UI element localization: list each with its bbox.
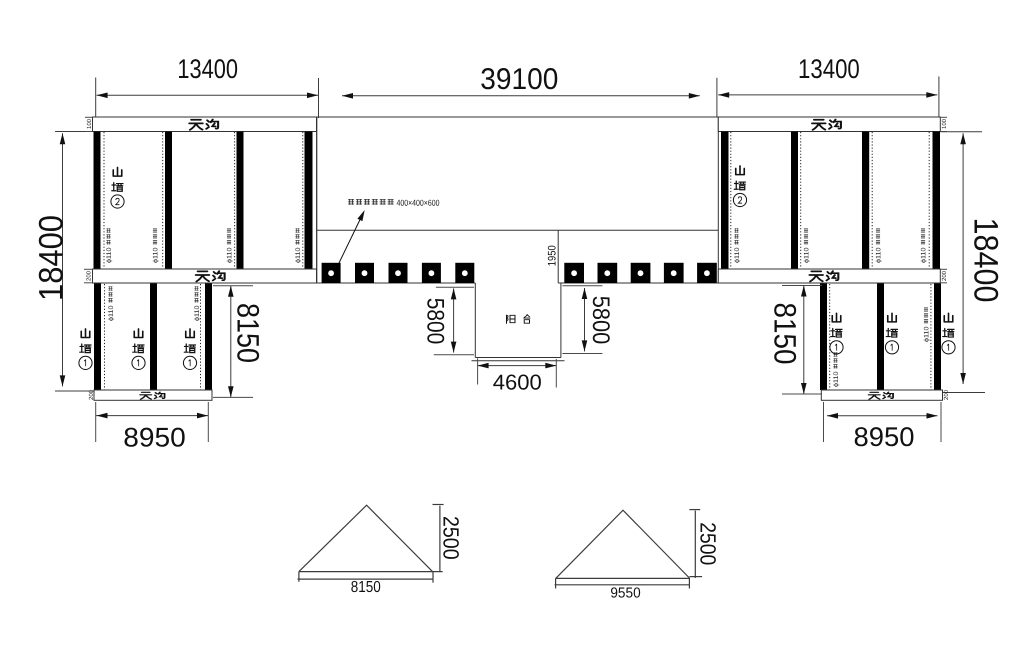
svg-text:5800: 5800 — [422, 298, 449, 345]
svg-text:8950: 8950 — [123, 422, 186, 452]
svg-text:ϕ110: ϕ110 — [734, 247, 741, 263]
svg-text:ϕ110: ϕ110 — [833, 371, 840, 387]
svg-text:200: 200 — [88, 389, 95, 400]
svg-text:ϕ110: ϕ110 — [923, 326, 930, 342]
svg-text:200: 200 — [941, 270, 948, 281]
svg-text:ϕ110: ϕ110 — [108, 305, 115, 321]
svg-text:ϕ110: ϕ110 — [226, 247, 233, 263]
svg-text:ϕ110: ϕ110 — [194, 305, 201, 321]
svg-text:2500: 2500 — [439, 516, 464, 560]
svg-text:13400: 13400 — [177, 54, 238, 84]
svg-text:9550: 9550 — [610, 585, 640, 601]
svg-text:39100: 39100 — [480, 63, 558, 96]
svg-text:1950: 1950 — [546, 245, 558, 266]
svg-text:ϕ110: ϕ110 — [152, 247, 159, 263]
svg-text:2500: 2500 — [696, 522, 721, 565]
svg-text:ϕ110: ϕ110 — [295, 247, 302, 263]
svg-text:ϕ110: ϕ110 — [106, 247, 113, 263]
svg-text:18400: 18400 — [33, 215, 71, 301]
svg-text:18400: 18400 — [966, 218, 1004, 303]
svg-text:200: 200 — [943, 389, 950, 400]
svg-text:8150: 8150 — [231, 303, 266, 363]
svg-text:400×400×600: 400×400×600 — [396, 198, 439, 208]
svg-text:100: 100 — [86, 118, 93, 129]
svg-text:ϕ110: ϕ110 — [920, 247, 927, 263]
svg-text:5800: 5800 — [587, 296, 614, 345]
svg-text:200: 200 — [86, 270, 93, 281]
svg-text:8150: 8150 — [351, 579, 381, 596]
svg-text:4600: 4600 — [493, 370, 542, 394]
svg-text:ϕ110: ϕ110 — [803, 247, 810, 263]
svg-text:100: 100 — [941, 118, 948, 129]
svg-text:8150: 8150 — [767, 303, 802, 365]
svg-text:ϕ110: ϕ110 — [875, 247, 882, 263]
svg-text:13400: 13400 — [798, 54, 860, 84]
svg-text:8950: 8950 — [853, 422, 914, 452]
